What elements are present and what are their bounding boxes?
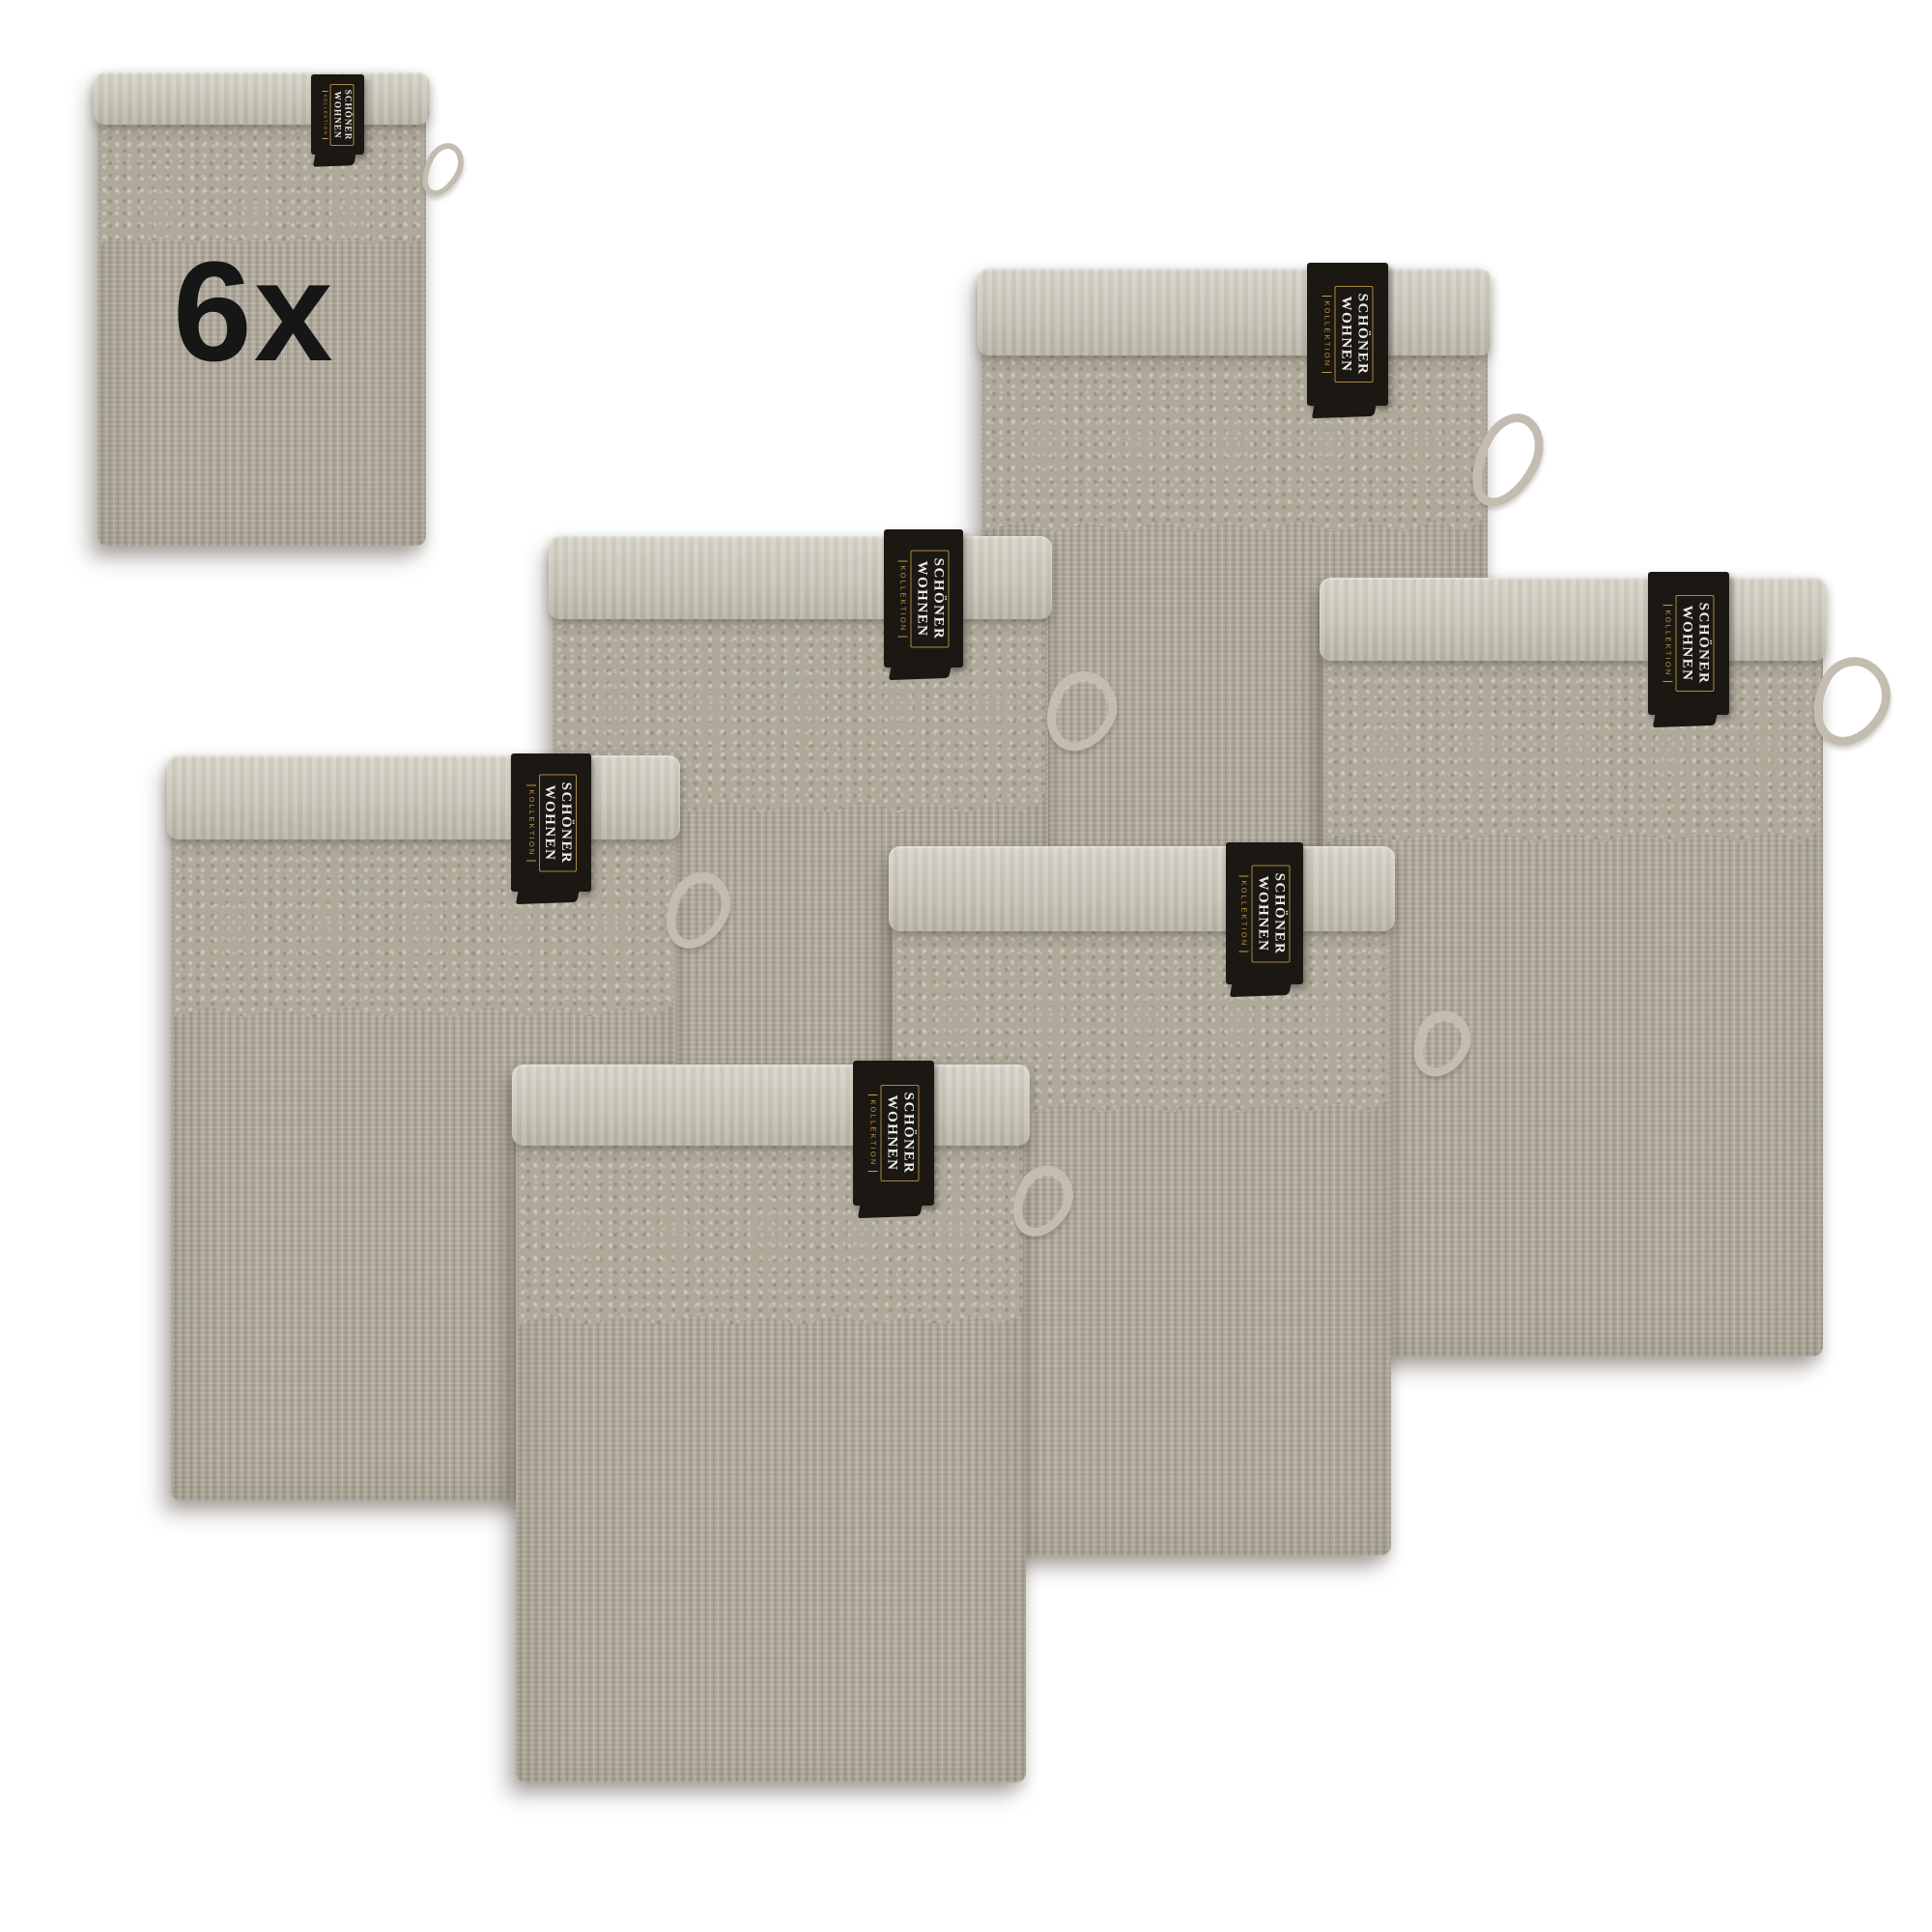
- wash-mitt: SCHÖNER WOHNEN KOLLEKTION: [516, 1065, 1026, 1782]
- brand-line-2: WOHNEN: [1255, 872, 1271, 954]
- mitt-hem-band: [167, 755, 680, 839]
- brand-name: SCHÖNER WOHNEN: [329, 84, 354, 145]
- brand-tag-text: SCHÖNER WOHNEN KOLLEKTION: [1650, 575, 1728, 712]
- brand-name: SCHÖNER WOHNEN: [538, 774, 577, 871]
- brand-tag-text: SCHÖNER WOHNEN KOLLEKTION: [1228, 845, 1302, 981]
- brand-line-1: SCHÖNER: [929, 557, 946, 639]
- brand-tag-text: SCHÖNER WOHNEN KOLLEKTION: [513, 756, 590, 889]
- brand-line-3: KOLLEKTION: [898, 560, 908, 637]
- brand-tag: SCHÖNER WOHNEN KOLLEKTION: [853, 1061, 934, 1206]
- brand-tag: SCHÖNER WOHNEN KOLLEKTION: [311, 74, 364, 155]
- brand-name: SCHÖNER WOHNEN: [911, 550, 950, 647]
- brand-tag-text: SCHÖNER WOHNEN KOLLEKTION: [1309, 266, 1387, 403]
- mitt-hem-band: [1320, 578, 1827, 661]
- product-image-wash-mitts: 6x SCHÖNER WOHNEN KOLLEKTION SCHÖNER WOH…: [0, 0, 1932, 1932]
- mitt-terry-band: [1326, 653, 1820, 842]
- brand-tag-text: SCHÖNER WOHNEN KOLLEKTION: [886, 532, 962, 665]
- brand-line-3: KOLLEKTION: [1663, 605, 1673, 681]
- brand-tag: SCHÖNER WOHNEN KOLLEKTION: [1648, 572, 1729, 715]
- brand-line-1: SCHÖNER: [1353, 294, 1370, 376]
- mitt-terry-band: [519, 1138, 1023, 1325]
- mitt-hem-band: [978, 269, 1492, 355]
- brand-tag: SCHÖNER WOHNEN KOLLEKTION: [884, 529, 963, 668]
- brand-line-2: WOHNEN: [1679, 603, 1695, 685]
- brand-name: SCHÖNER WOHNEN: [881, 1085, 920, 1182]
- mitt-terry-band: [100, 117, 423, 244]
- brand-line-1: SCHÖNER: [1694, 603, 1711, 685]
- brand-line-2: WOHNEN: [541, 781, 557, 864]
- brand-tag-text: SCHÖNER WOHNEN KOLLEKTION: [855, 1064, 933, 1203]
- brand-name: SCHÖNER WOHNEN: [1252, 865, 1291, 962]
- brand-line-1: SCHÖNER: [557, 781, 574, 864]
- brand-line-3: KOLLEKTION: [1239, 875, 1249, 952]
- brand-line-1: SCHÖNER: [341, 89, 351, 140]
- brand-tag: SCHÖNER WOHNEN KOLLEKTION: [1307, 263, 1388, 406]
- wash-mitt: SCHÖNER WOHNEN KOLLEKTION: [1323, 578, 1823, 1356]
- mitt-hem-band: [512, 1065, 1030, 1146]
- brand-tag: SCHÖNER WOHNEN KOLLEKTION: [1226, 842, 1303, 984]
- brand-line-3: KOLLEKTION: [322, 91, 327, 139]
- mitt-hem-band: [549, 536, 1052, 619]
- brand-tag: SCHÖNER WOHNEN KOLLEKTION: [511, 753, 591, 892]
- mitt-hem-band: [889, 846, 1395, 931]
- brand-name: SCHÖNER WOHNEN: [1335, 286, 1374, 384]
- brand-line-2: WOHNEN: [884, 1093, 900, 1175]
- brand-line-1: SCHÖNER: [1270, 872, 1287, 954]
- mitt-hem-band: [94, 72, 430, 125]
- brand-name: SCHÖNER WOHNEN: [1676, 595, 1715, 693]
- brand-tag-text: SCHÖNER WOHNEN KOLLEKTION: [312, 76, 363, 154]
- mitt-terry-band: [174, 832, 673, 1017]
- brand-line-2: WOHNEN: [331, 89, 341, 140]
- brand-line-3: KOLLEKTION: [868, 1094, 878, 1171]
- quantity-badge: 6x: [173, 241, 335, 384]
- brand-line-2: WOHNEN: [914, 557, 930, 639]
- mitt-terry-band: [984, 348, 1485, 531]
- brand-line-3: KOLLEKTION: [1322, 296, 1332, 372]
- brand-line-3: KOLLEKTION: [526, 784, 535, 861]
- brand-line-2: WOHNEN: [1338, 294, 1354, 376]
- brand-line-1: SCHÖNER: [899, 1093, 916, 1175]
